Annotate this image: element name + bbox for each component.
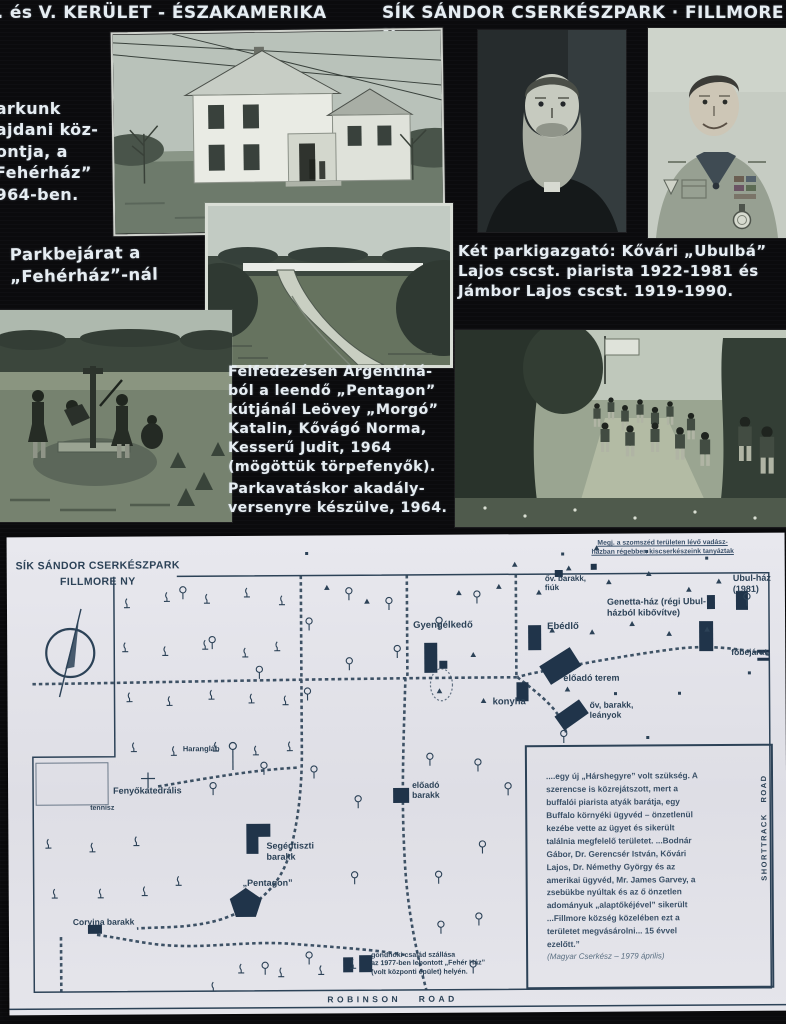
map-label-tennisz: tennisz xyxy=(90,805,114,813)
building-ov-barakk-leanyok xyxy=(554,699,588,730)
map-label-fenyokatedralis: Fenyőkatedrális xyxy=(113,785,182,796)
well-digging-scene xyxy=(0,310,232,522)
map-label-ubul-haz: Ubul-ház (1981) xyxy=(733,573,771,594)
map-label-ebedlo: Ebédlő xyxy=(547,621,579,632)
caption-obstacle-race: Parkavatáskor akadály- versenyre készülv… xyxy=(228,480,458,518)
map-label-shorttrack-road: SHORTTRACK ROAD xyxy=(760,774,769,880)
photo-park-entrance-road xyxy=(205,203,453,368)
bearded-man-portrait xyxy=(478,30,626,232)
map-label-eloado-barakk: előadó barakk xyxy=(412,780,440,800)
map-quote-source: (Magyar Cserkész – 1979 április) xyxy=(547,951,755,961)
map-label-fobejarat: főbejárat xyxy=(731,647,767,657)
photo-well-digging xyxy=(0,310,232,522)
road-landscape-scene xyxy=(208,206,450,365)
building-eloado-barakk xyxy=(393,788,409,803)
caption-white-house: Parkunk hajdani köz- pontja, a „Fehérház… xyxy=(0,98,124,205)
loop-path xyxy=(430,669,452,701)
map-symbols xyxy=(35,669,453,806)
map-title: SÍK SÁNDOR CSERKÉSZPARK FILLMORE NY xyxy=(13,558,183,591)
map-label-konyha: konyha xyxy=(493,696,526,707)
map-label-gondnoki: gondnoki család szállása az 1977-ben leb… xyxy=(371,951,485,976)
tennis-court xyxy=(36,763,108,805)
scrapbook-page: { "header": { "title_left": "I. és V. KE… xyxy=(0,0,786,1024)
map-label-segedtiszti-barakk: Segédtiszti barakk xyxy=(266,841,314,863)
caption-discovery: Felfedezésen Argentíná- ból a leendő „Pe… xyxy=(228,363,456,477)
photo-director-kovari xyxy=(478,30,626,232)
map-label-haranglab: Harangláb xyxy=(183,745,220,754)
building-gyengelkedo xyxy=(424,643,437,673)
map-label-corvina-barakk: Corvina barakk xyxy=(73,917,134,927)
map-label-ov-barakk-fiuk: őv. barakk, fiúk xyxy=(545,574,586,593)
scouts-marching-scene xyxy=(455,330,786,527)
scout-uniform-portrait xyxy=(648,28,786,238)
building-genetta-haz xyxy=(699,621,713,651)
map-label-genetta-haz: Genetta-ház (régi Ubul- házból kibővítve… xyxy=(607,596,706,618)
map-note: Megj. a szomszéd területen lévő vadász- … xyxy=(555,538,771,558)
map-label-pentagon: „Pentagon” xyxy=(243,878,293,889)
map-label-eloado-terem: előadó terem xyxy=(563,673,619,684)
page-title-left: I. és V. KERÜLET - ÉSZAKAMERIKA xyxy=(0,2,327,25)
caption-directors: Két parkigazgató: Kővári „Ubulbá” Lajos … xyxy=(458,241,786,301)
map-label-ov-barakk-leanyok: őv, barakk, leányok xyxy=(590,700,634,720)
caption-park-entrance: Parkbejárat a „Fehérház”-nál xyxy=(10,242,159,289)
bell-tower-icon xyxy=(229,742,236,770)
building-pentagon xyxy=(230,888,262,917)
map-quote-text: ....egy új „Hárshegyre” volt szükség. A … xyxy=(546,769,755,951)
map-label-robinson-road: ROBINSON ROAD xyxy=(327,994,457,1005)
park-map: SÍK SÁNDOR CSERKÉSZPARK FILLMORE NY Megj… xyxy=(7,533,786,1016)
map-label-gyengelkedo: Gyengélkedő xyxy=(413,620,473,632)
building-ebedlo xyxy=(528,625,541,650)
photo-director-jambor xyxy=(648,28,786,238)
building-gondnoki xyxy=(343,957,353,972)
photo-scouts-marching xyxy=(455,330,786,527)
